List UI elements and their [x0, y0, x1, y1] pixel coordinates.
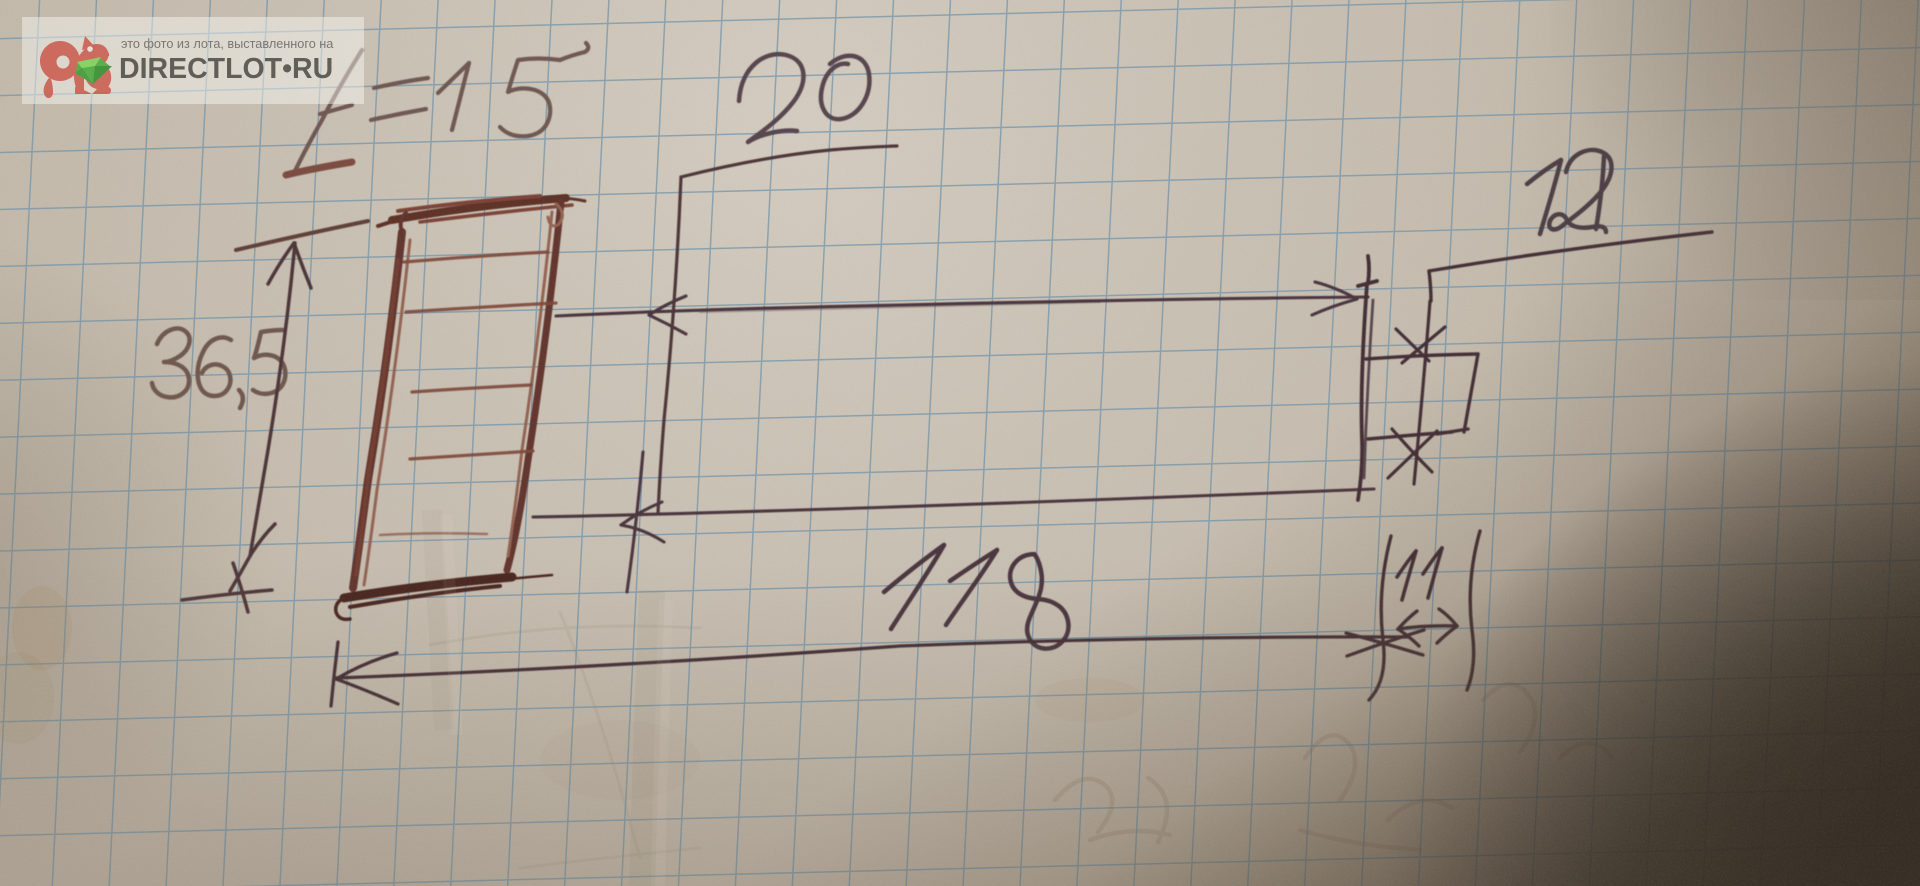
svg-text:DIRECTLOT•RU: DIRECTLOT•RU — [119, 53, 333, 85]
svg-text:это фото из лота, выставленног: это фото из лота, выставленного на — [121, 37, 334, 51]
